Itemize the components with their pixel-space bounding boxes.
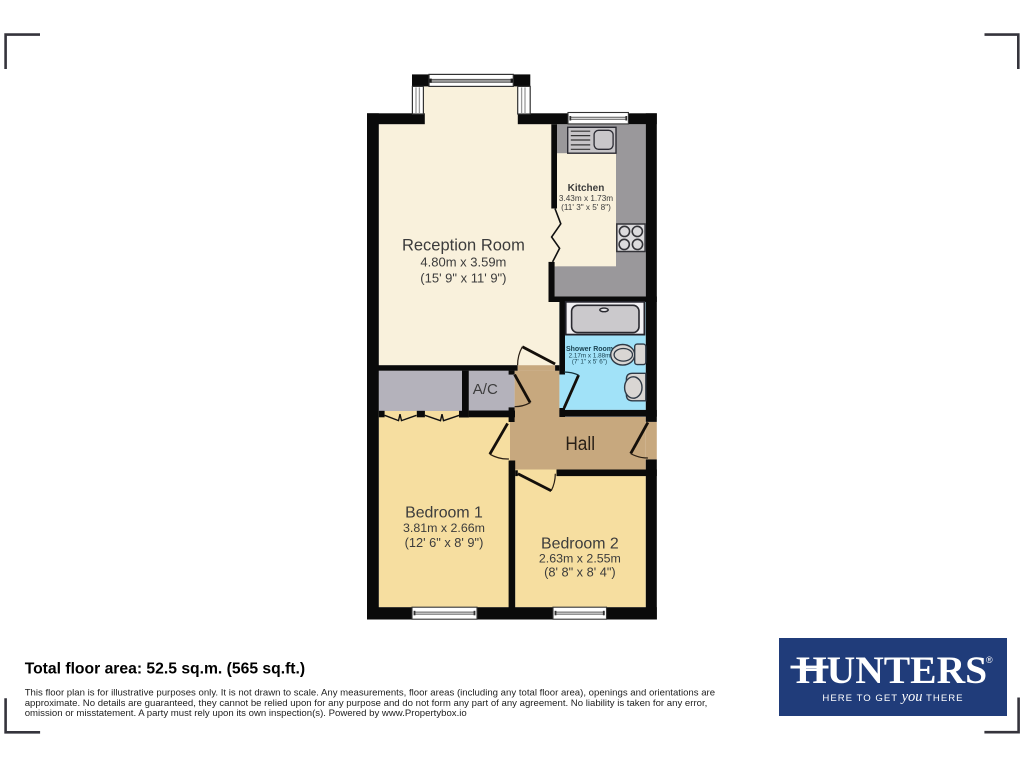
svg-text:(11' 3" x 5' 8"): (11' 3" x 5' 8") [561, 203, 611, 212]
svg-text:HUNTERS: HUNTERS [796, 648, 987, 692]
svg-text:omission or misstatement. A pa: omission or misstatement. A party must r… [25, 708, 467, 719]
svg-text:(7' 1" x 5' 6"): (7' 1" x 5' 6") [572, 359, 607, 366]
svg-text:3.43m x 1.73m: 3.43m x 1.73m [559, 194, 613, 203]
svg-text:Hall: Hall [565, 432, 595, 454]
svg-text:2.63m x 2.55m: 2.63m x 2.55m [539, 552, 621, 566]
svg-text:Bedroom 2: Bedroom 2 [541, 535, 619, 552]
svg-text:Total floor area: 52.5 sq.m. (: Total floor area: 52.5 sq.m. (565 sq.ft.… [25, 661, 305, 678]
svg-text:(12' 6" x 8' 9"): (12' 6" x 8' 9") [405, 535, 484, 550]
svg-text:3.81m x 2.66m: 3.81m x 2.66m [403, 521, 485, 535]
svg-text:4.80m x 3.59m: 4.80m x 3.59m [420, 255, 506, 270]
svg-text:Bedroom 1: Bedroom 1 [405, 505, 483, 522]
svg-text:A/C: A/C [473, 381, 498, 398]
svg-text:Reception Room: Reception Room [402, 236, 525, 254]
svg-text:(15' 9" x 11' 9"): (15' 9" x 11' 9") [420, 270, 506, 285]
svg-text:®: ® [986, 655, 993, 665]
svg-text:(8' 8" x 8' 4"): (8' 8" x 8' 4") [544, 565, 616, 580]
svg-text:Kitchen: Kitchen [568, 183, 605, 194]
